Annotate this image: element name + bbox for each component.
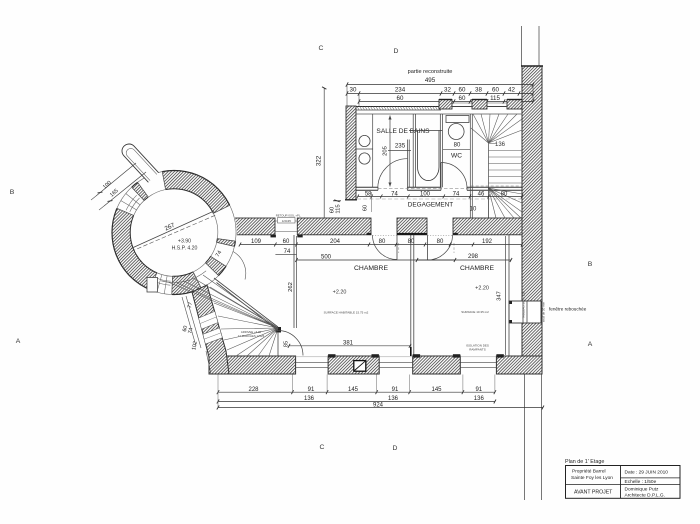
svg-text:C: C (319, 45, 324, 52)
svg-text:Echelle : 1/50e: Echelle : 1/50e (625, 479, 657, 485)
svg-text:145: 145 (431, 387, 442, 393)
svg-text:235: 235 (395, 143, 406, 150)
svg-text:CHAMBRE: CHAMBRE (354, 265, 388, 272)
svg-text:17 MARCHES 17x25: 17 MARCHES 17x25 (238, 334, 265, 338)
svg-text:136: 136 (474, 396, 485, 402)
svg-text:SURFACE HABITABLE 15.75 m2: SURFACE HABITABLE 15.75 m2 (324, 311, 369, 315)
svg-text:60: 60 (283, 239, 290, 245)
svg-text:60: 60 (492, 87, 499, 94)
svg-text:91: 91 (392, 387, 399, 393)
svg-text:SALLE DE BAINS: SALLE DE BAINS (376, 128, 430, 135)
svg-text:136: 136 (304, 396, 315, 402)
svg-text:60: 60 (363, 205, 369, 211)
svg-text:136: 136 (495, 142, 506, 148)
svg-text:Architecte D.P.L.G.: Architecte D.P.L.G. (625, 493, 665, 499)
svg-text:60: 60 (459, 87, 466, 94)
svg-text:74: 74 (453, 191, 460, 197)
svg-text:C: C (320, 444, 325, 451)
svg-text:+2.20: +2.20 (475, 286, 489, 292)
svg-text:58: 58 (365, 191, 372, 197)
svg-text:74: 74 (391, 191, 398, 197)
svg-text:DEGAGEMENT: DEGAGEMENT (408, 202, 454, 209)
svg-text:RETOUR ISOL.+PL.: RETOUR ISOL.+PL. (276, 214, 302, 218)
svg-text:100: 100 (420, 191, 431, 197)
svg-text:204: 204 (330, 239, 341, 245)
svg-text:85: 85 (284, 341, 290, 347)
svg-text:WC: WC (451, 153, 462, 160)
svg-text:115: 115 (336, 204, 342, 213)
svg-text:262: 262 (288, 282, 294, 292)
svg-text:80: 80 (454, 143, 461, 149)
svg-text:seuil de 20 mm: seuil de 20 mm (542, 301, 546, 322)
svg-text:partie reconstruite: partie reconstruite (408, 69, 453, 75)
svg-text:Propriété Barrel: Propriété Barrel (572, 469, 606, 475)
svg-text:80: 80 (501, 191, 508, 197)
svg-text:AVANT PROJET: AVANT PROJET (574, 490, 613, 496)
svg-text:A: A (588, 341, 593, 348)
svg-text:fenêtre rebouchée: fenêtre rebouchée (549, 307, 587, 312)
svg-text:SURFACE 10.35 m2: SURFACE 10.35 m2 (461, 310, 489, 314)
svg-text:298: 298 (468, 254, 479, 260)
svg-text:D: D (394, 48, 399, 55)
svg-text:115: 115 (490, 95, 500, 102)
svg-text:38: 38 (475, 87, 482, 94)
svg-text:234: 234 (395, 87, 406, 94)
svg-text:Dominique Putz: Dominique Putz (625, 487, 659, 493)
svg-text:91: 91 (308, 387, 315, 393)
svg-text:322: 322 (316, 155, 323, 166)
svg-text:Date : 29 JUIN 2010: Date : 29 JUIN 2010 (625, 470, 669, 476)
svg-text:D: D (393, 445, 398, 452)
svg-text:91: 91 (475, 387, 482, 393)
svg-text:145: 145 (348, 387, 359, 393)
svg-text:924: 924 (373, 402, 384, 408)
svg-text:80: 80 (437, 239, 444, 245)
svg-text:+2.20: +2.20 (333, 290, 347, 296)
svg-text:120x95: 120x95 (282, 219, 292, 223)
svg-text:TABLEAU 100 x 210: TABLEAU 100 x 210 (522, 291, 526, 319)
svg-text:228: 228 (248, 387, 259, 393)
svg-text:347: 347 (497, 291, 503, 301)
svg-text:80: 80 (379, 239, 386, 245)
svg-text:381: 381 (343, 340, 354, 346)
svg-text:H.S.P. 4.20: H.S.P. 4.20 (172, 246, 198, 252)
svg-text:109: 109 (251, 239, 262, 245)
svg-text:CHAMBRE: CHAMBRE (460, 265, 494, 272)
svg-text:30: 30 (350, 87, 357, 94)
svg-text:B: B (588, 261, 593, 268)
svg-text:RAMPANTS: RAMPANTS (469, 348, 485, 352)
svg-text:205: 205 (383, 146, 389, 156)
svg-text:46: 46 (478, 191, 485, 197)
svg-text:136: 136 (388, 396, 399, 402)
svg-text:32: 32 (444, 87, 451, 94)
svg-text:60: 60 (459, 95, 466, 102)
svg-text:10: 10 (470, 207, 477, 213)
svg-text:42: 42 (508, 87, 515, 94)
svg-text:+3.90: +3.90 (178, 239, 191, 245)
svg-text:A: A (16, 338, 21, 345)
svg-text:Sainte Foy les Lyon: Sainte Foy les Lyon (571, 475, 613, 481)
svg-text:60: 60 (397, 95, 404, 102)
svg-text:495: 495 (425, 77, 436, 84)
svg-text:B: B (10, 189, 15, 196)
svg-text:192: 192 (482, 239, 493, 245)
svg-text:Plan de 1' Etage: Plan de 1' Etage (565, 459, 604, 465)
